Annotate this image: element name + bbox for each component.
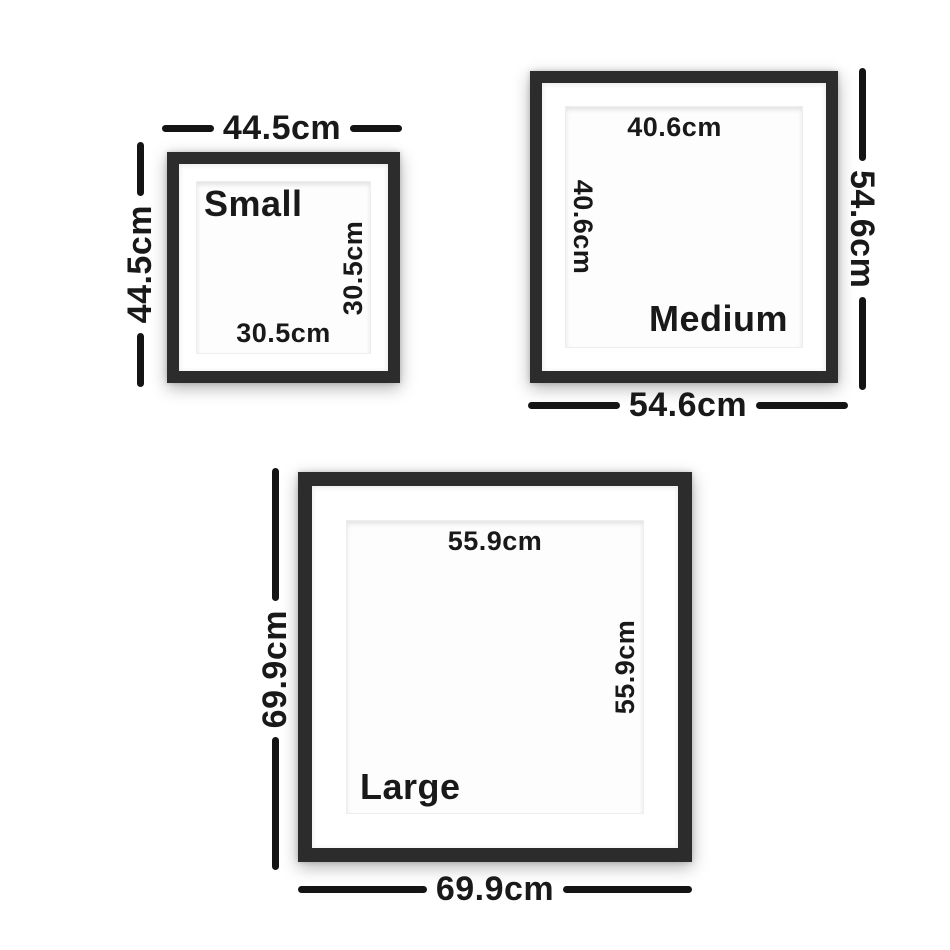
- small-inner-width-label: 30.5cm: [236, 320, 331, 347]
- small-inner-height-label: 30.5cm: [340, 220, 367, 315]
- dimension-line-segment: [272, 737, 279, 870]
- large-frame: 55.9cm 55.9cm Large: [298, 472, 692, 862]
- dimension-line-segment: [756, 402, 848, 409]
- large-outer-width-label: 69.9cm: [436, 872, 554, 906]
- medium-outer-width-dimension: 54.6cm: [528, 386, 848, 424]
- large-outer-height-label: 69.9cm: [258, 610, 292, 728]
- medium-outer-height-dimension: 54.6cm: [843, 68, 881, 390]
- small-outer-width-dimension: 44.5cm: [162, 109, 402, 147]
- medium-inner-width-label: 40.6cm: [627, 114, 722, 141]
- large-outer-height-dimension: 69.9cm: [256, 468, 294, 870]
- small-frame-name: Small: [204, 184, 303, 224]
- dimension-line-segment: [859, 68, 866, 161]
- medium-outer-width-label: 54.6cm: [629, 388, 747, 422]
- medium-inner-height-label: 40.6cm: [569, 180, 596, 275]
- small-frame: Small 30.5cm 30.5cm: [167, 152, 400, 383]
- dimension-line-segment: [272, 468, 279, 601]
- frame-size-diagram: 44.5cm 44.5cm Small 30.5cm 30.5cm 40.6cm…: [0, 0, 950, 950]
- large-inner-width-label: 55.9cm: [448, 528, 543, 555]
- large-outer-width-dimension: 69.9cm: [298, 869, 692, 909]
- dimension-line-segment: [162, 125, 214, 132]
- medium-frame-name: Medium: [649, 299, 788, 339]
- dimension-line-segment: [528, 402, 620, 409]
- small-frame-opening: Small 30.5cm 30.5cm: [196, 181, 371, 354]
- medium-frame-opening: 40.6cm 40.6cm Medium: [565, 106, 803, 348]
- dimension-line-segment: [350, 125, 402, 132]
- dimension-line-segment: [298, 886, 427, 893]
- small-outer-height-dimension: 44.5cm: [121, 142, 159, 387]
- dimension-line-segment: [137, 142, 144, 196]
- dimension-line-segment: [137, 333, 144, 387]
- small-outer-height-label: 44.5cm: [123, 205, 157, 323]
- dimension-line-segment: [563, 886, 692, 893]
- large-frame-name: Large: [360, 767, 461, 807]
- large-inner-height-label: 55.9cm: [612, 620, 639, 715]
- dimension-line-segment: [859, 297, 866, 390]
- small-outer-width-label: 44.5cm: [223, 111, 341, 145]
- medium-frame: 40.6cm 40.6cm Medium: [530, 71, 838, 383]
- medium-outer-height-label: 54.6cm: [845, 170, 879, 288]
- large-frame-opening: 55.9cm 55.9cm Large: [346, 520, 644, 814]
